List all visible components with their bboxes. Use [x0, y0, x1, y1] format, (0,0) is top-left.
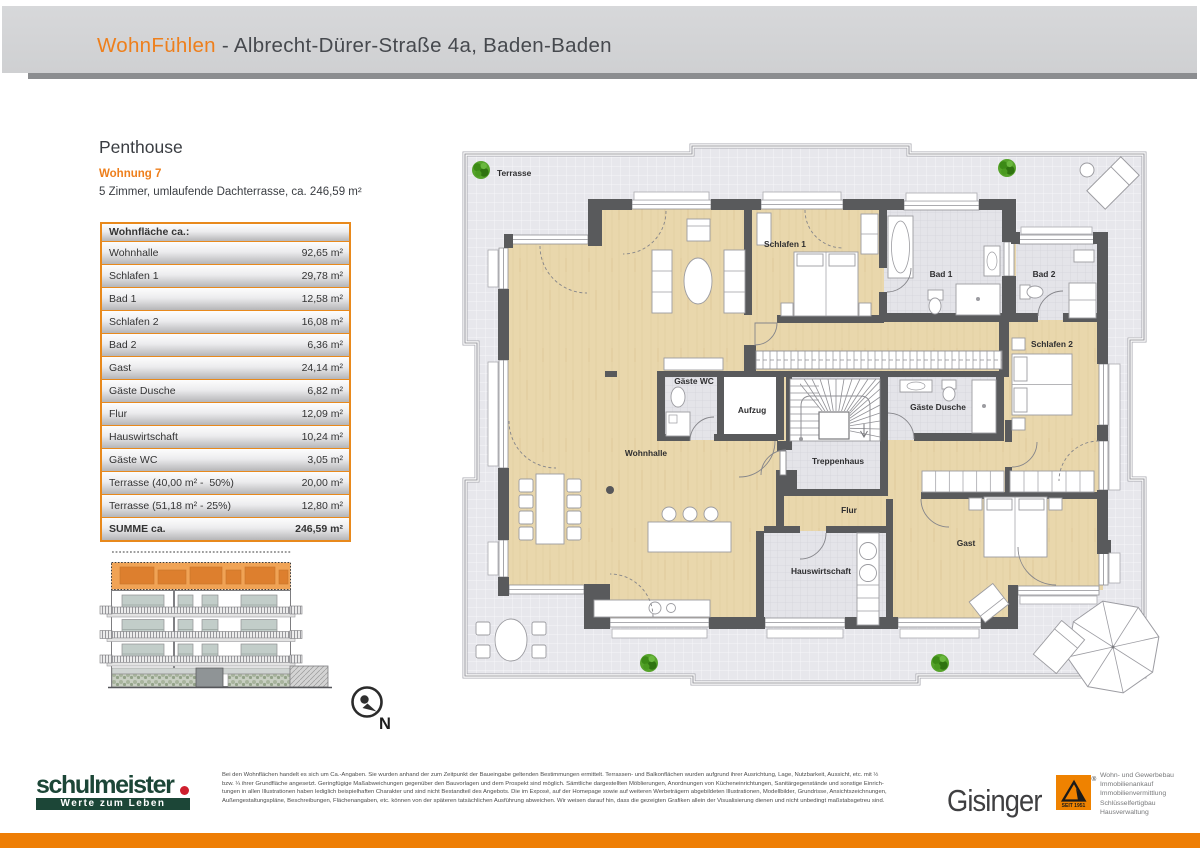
- svg-text:N: N: [379, 715, 391, 733]
- svg-text:Bad 1: Bad 1: [930, 269, 953, 279]
- svg-text:Treppenhaus: Treppenhaus: [812, 456, 864, 466]
- svg-text:Aufzug: Aufzug: [738, 405, 766, 415]
- svg-text:Gäste Dusche: Gäste Dusche: [910, 402, 966, 412]
- svg-text:Schlafen 2: Schlafen 2: [1031, 339, 1073, 349]
- svg-text:Schlafen 1: Schlafen 1: [764, 239, 806, 249]
- svg-text:Bad 2: Bad 2: [1033, 269, 1056, 279]
- svg-text:Flur: Flur: [841, 505, 858, 515]
- svg-text:Wohnhalle: Wohnhalle: [625, 448, 668, 458]
- svg-text:Hauswirtschaft: Hauswirtschaft: [791, 566, 851, 576]
- svg-text:®: ®: [1092, 775, 1097, 783]
- svg-text:Terrasse: Terrasse: [497, 168, 532, 178]
- svg-text:SEIT 1951: SEIT 1951: [1062, 803, 1086, 809]
- svg-text:Gäste WC: Gäste WC: [674, 376, 714, 386]
- svg-text:Gast: Gast: [957, 538, 976, 548]
